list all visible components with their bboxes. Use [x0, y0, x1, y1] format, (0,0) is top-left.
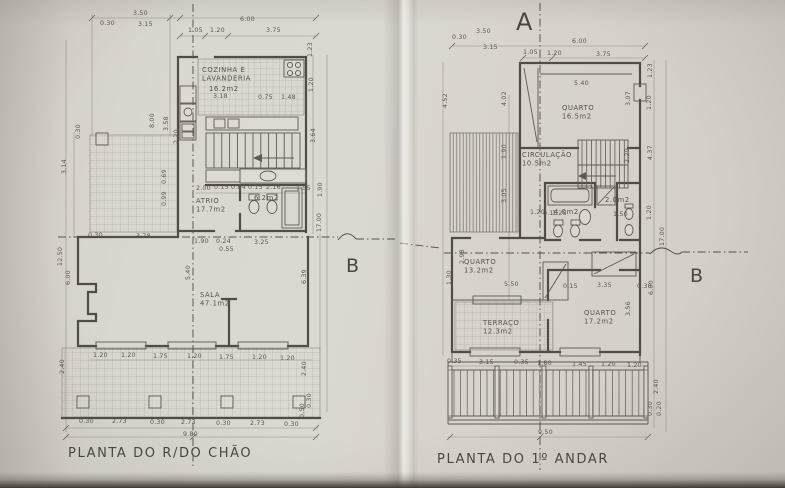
table-edge-shadow [0, 472, 785, 488]
photo-vignette [0, 0, 785, 488]
photo-of-floor-plans: 3.500.303.156.001.051.203.751.231.203.64… [0, 0, 785, 488]
